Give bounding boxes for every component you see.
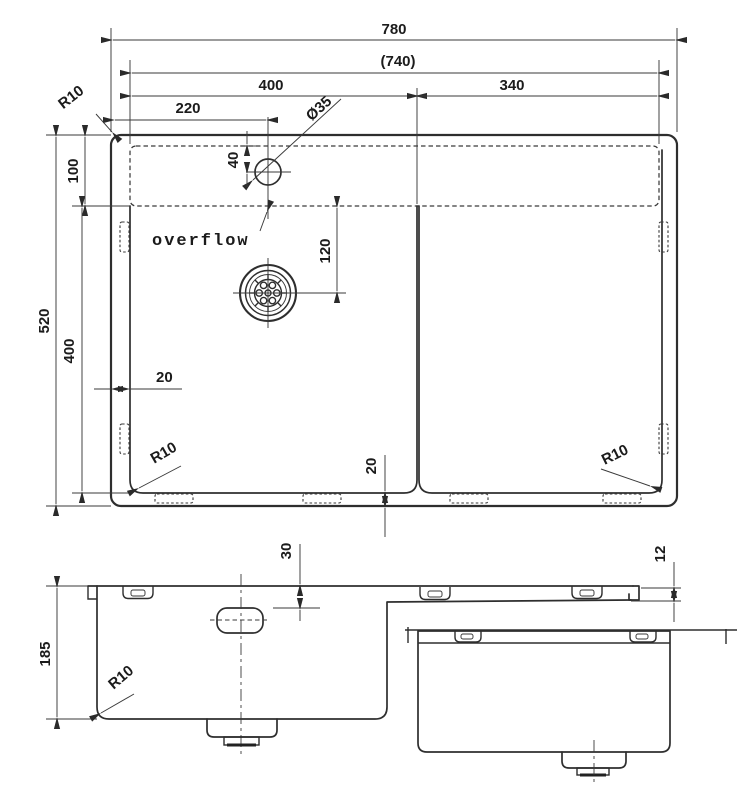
back-ledge-hidden-edge [130, 146, 659, 206]
dimension-drain-offset: 120 [298, 208, 346, 293]
dim-40: 40 [225, 152, 242, 169]
dimension-faucet-offset: 220 [115, 100, 266, 120]
dim-340: 340 [499, 77, 524, 94]
r10-top-left: R10 [55, 82, 87, 112]
dimension-cutout-width: (740) [130, 53, 659, 144]
dim-740: (740) [380, 53, 415, 70]
mounting-clip [120, 222, 129, 252]
top-view: Ø35 overflow [36, 21, 677, 537]
dim-12: 12 [652, 546, 669, 563]
bowl-side-profile [418, 631, 670, 752]
dimension-bowl-height: 185 [37, 588, 97, 719]
dim-20-bottom: 20 [363, 458, 380, 475]
rim-left-hook [88, 586, 97, 599]
overflow-leader [260, 212, 267, 231]
dim-400-top: 400 [258, 77, 283, 94]
dim-220: 220 [175, 100, 200, 117]
dimension-overflow-offset: 30 [273, 543, 320, 621]
dimension-faucet-to-ledge: 40 [225, 131, 256, 187]
overflow-label: overflow [152, 232, 250, 251]
sink-technical-drawing: Ø35 overflow [0, 0, 742, 800]
drawing-sheet: Ø35 overflow [0, 0, 742, 800]
mounting-clip [120, 424, 129, 454]
dim-520: 520 [36, 308, 53, 333]
right-bowl-outline [419, 150, 662, 493]
radius-callout-bowl-corner: R10 [139, 439, 181, 488]
dimension-side-wall: 20 [94, 369, 182, 389]
dimension-bottom-wall: 20 [363, 455, 385, 537]
dimension-bowl-drainboard-widths: 400 340 [132, 77, 657, 204]
overflow-hole-section [217, 608, 263, 633]
dim-100: 100 [65, 158, 82, 183]
mounting-clips-plan [120, 222, 668, 503]
mounting-clip [603, 494, 641, 503]
drain-fitting-front [207, 719, 277, 745]
r10-bottom-left: R10 [148, 439, 180, 467]
mounting-clips-front [123, 586, 602, 600]
mounting-clip [420, 587, 450, 600]
mounting-clip [659, 424, 668, 454]
drainboard-edge-hook [629, 586, 639, 600]
faucet-hole-diameter-label: Ø35 [303, 93, 335, 125]
dimension-drainboard-lip: 12 [631, 546, 681, 622]
r10-bottom-right: R10 [599, 441, 631, 468]
faucet-hole [246, 117, 291, 219]
mounting-clip [659, 222, 668, 252]
bowl-section-profile [97, 586, 631, 719]
r10-front: R10 [105, 662, 137, 693]
dim-780: 780 [381, 21, 406, 38]
dim-400-left: 400 [61, 338, 78, 363]
mounting-clip [303, 494, 341, 503]
radius-callout-top-left: R10 [55, 82, 112, 132]
dimension-back-ledge: 100 [65, 135, 130, 206]
front-view: 185 R10 30 12 [37, 543, 681, 757]
drain-fitting-side [562, 740, 626, 783]
sink-outer-edge [111, 135, 677, 506]
dimension-overall-depth: 520 [36, 135, 111, 506]
drain-strainer [233, 258, 303, 328]
mounting-clip [123, 586, 153, 599]
mounting-clip [455, 631, 481, 642]
mounting-clip [630, 631, 656, 642]
radius-callout-right-corner: R10 [599, 441, 650, 486]
mounting-clip [155, 494, 193, 503]
radius-callout-front: R10 [101, 662, 137, 713]
dim-20-left: 20 [156, 369, 173, 386]
mounting-clip [450, 494, 488, 503]
mounting-clips-side [455, 631, 656, 642]
side-view [405, 627, 737, 783]
dim-30: 30 [278, 543, 295, 560]
mounting-clip [572, 586, 602, 599]
dim-120: 120 [317, 238, 334, 263]
dim-185: 185 [37, 641, 54, 666]
